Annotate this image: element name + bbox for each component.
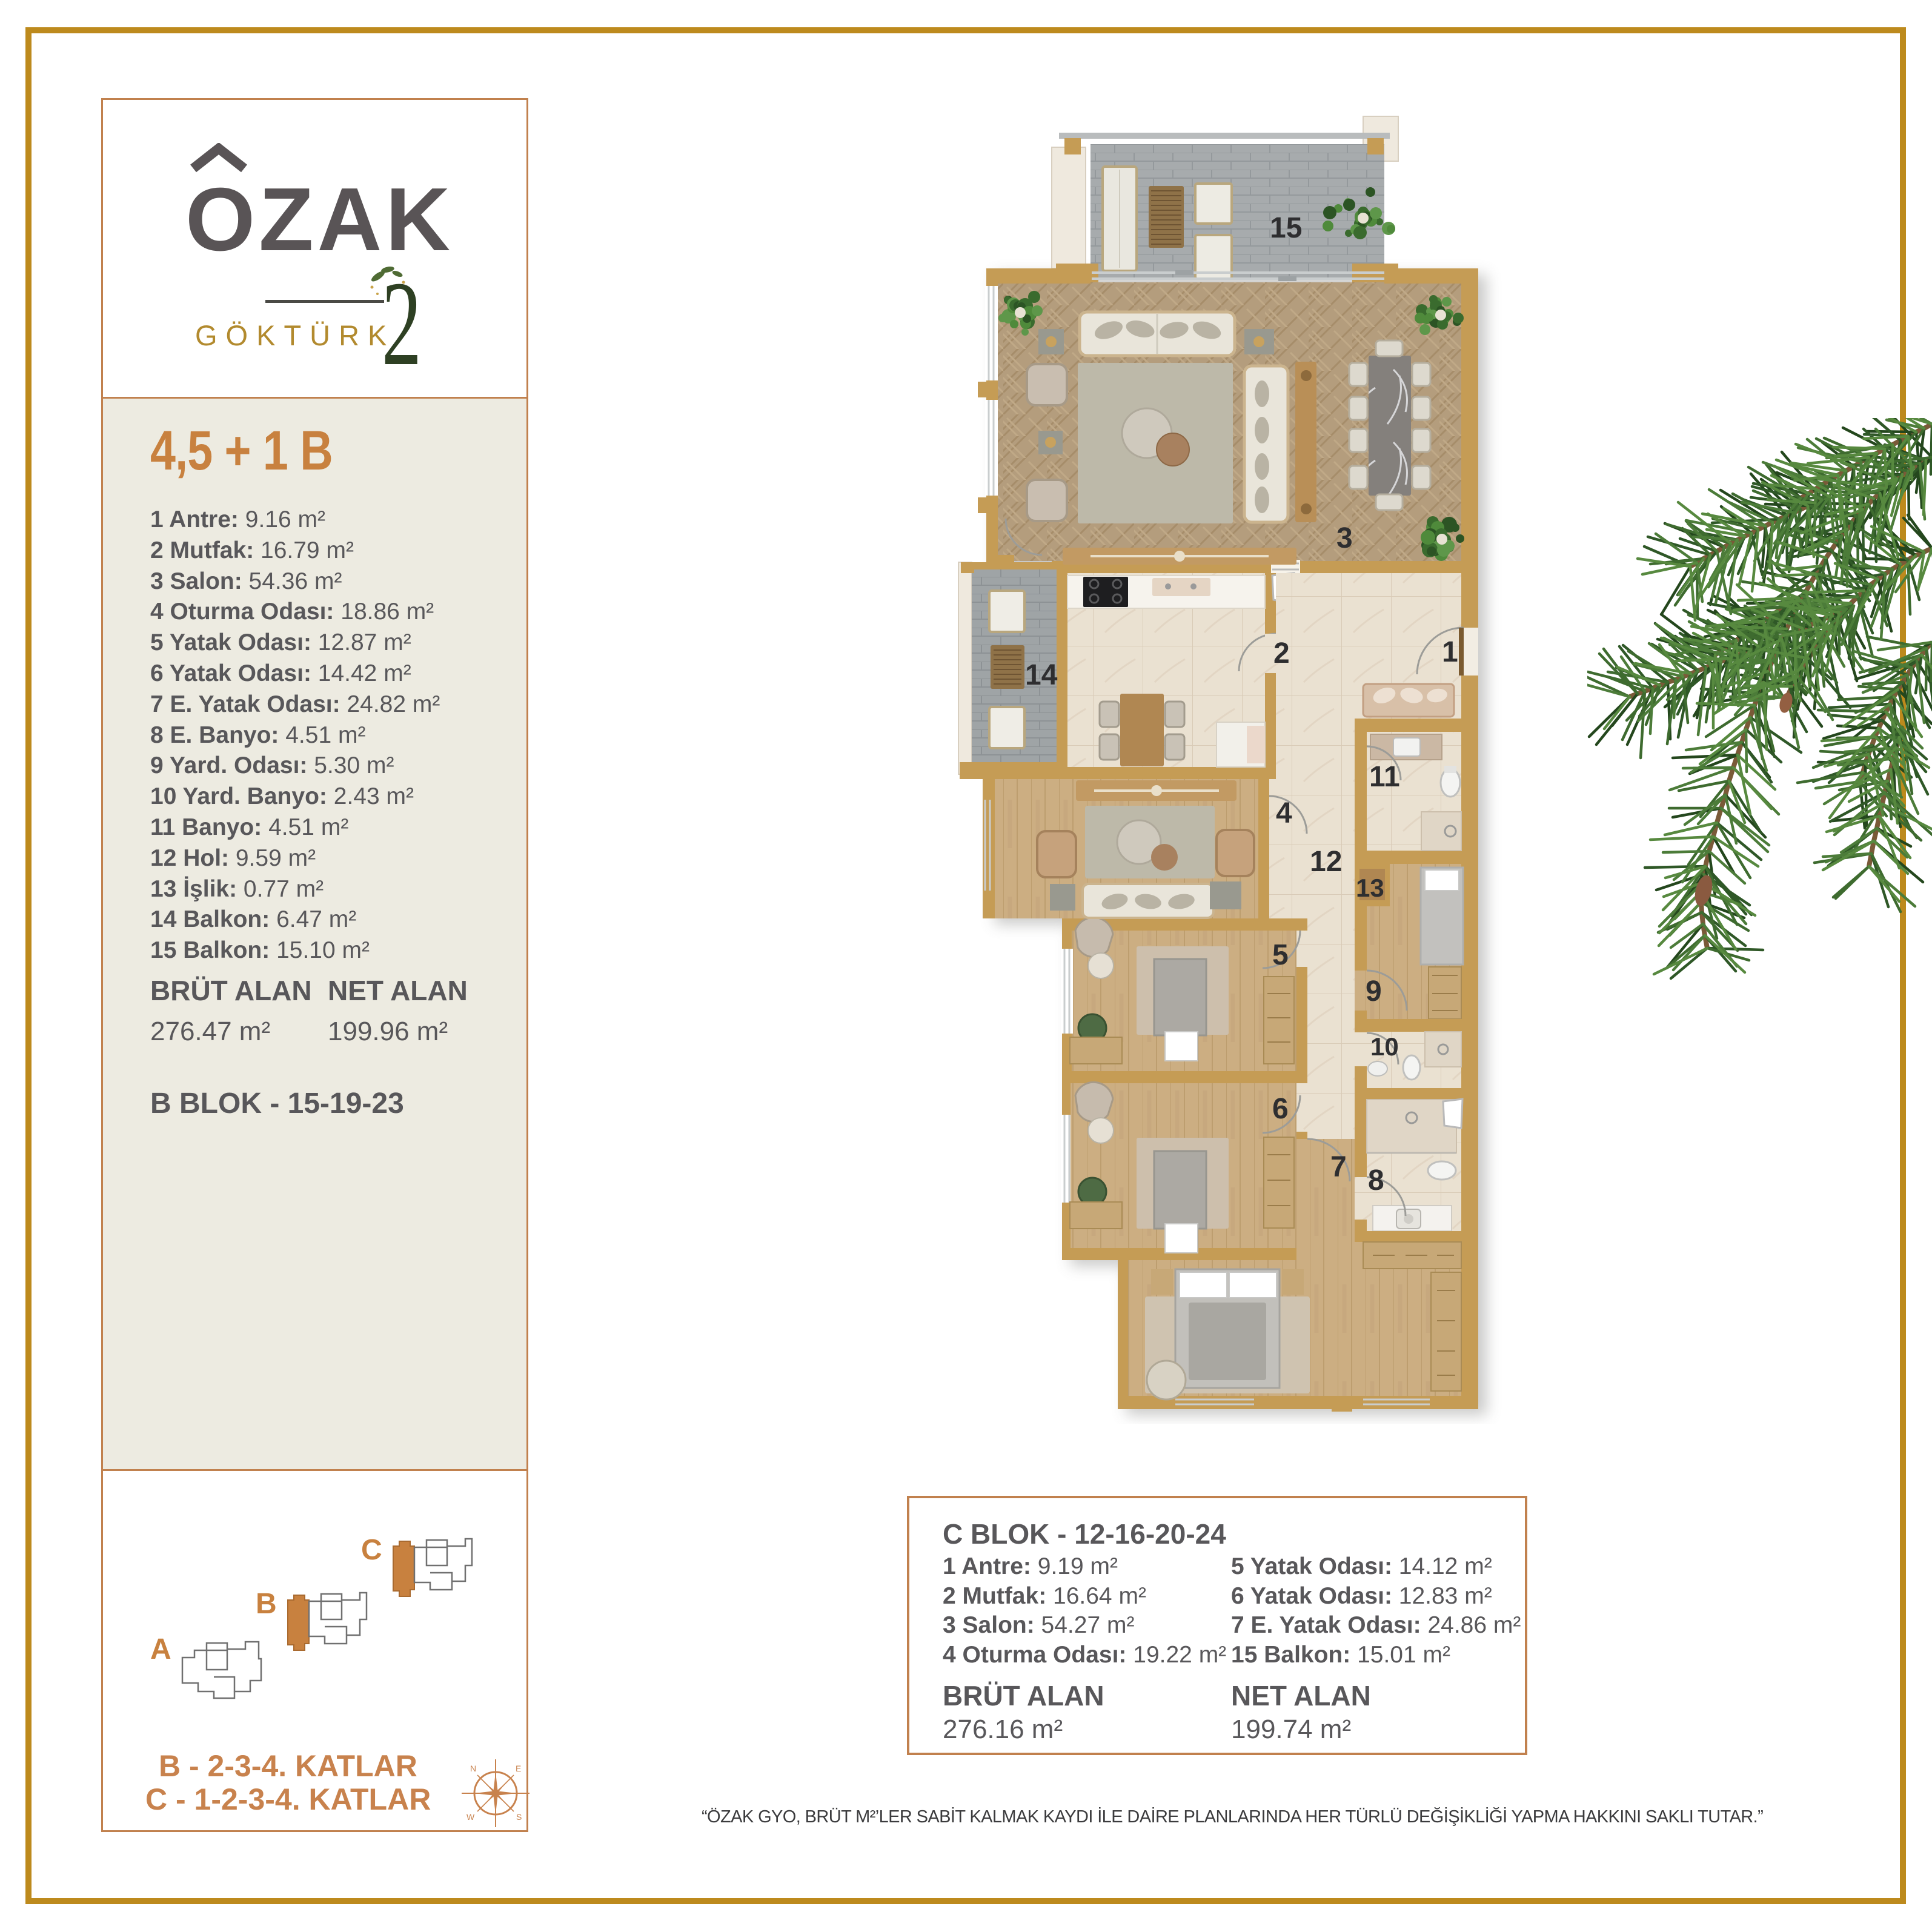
svg-text:N: N xyxy=(470,1764,476,1773)
svg-text:11: 11 xyxy=(1369,761,1400,793)
svg-text:5: 5 xyxy=(1272,939,1289,971)
svg-text:C: C xyxy=(361,1534,382,1566)
svg-text:13: 13 xyxy=(1356,874,1384,902)
svg-text:W: W xyxy=(466,1812,475,1822)
svg-text:10: 10 xyxy=(1370,1032,1399,1061)
svg-text:9: 9 xyxy=(1366,975,1382,1007)
svg-text:A: A xyxy=(150,1633,171,1665)
svg-text:15: 15 xyxy=(1270,212,1302,244)
svg-text:S: S xyxy=(516,1812,522,1822)
svg-text:12: 12 xyxy=(1310,846,1342,878)
svg-text:2: 2 xyxy=(1273,637,1290,669)
svg-text:1: 1 xyxy=(1442,636,1458,668)
svg-text:B: B xyxy=(256,1588,277,1620)
svg-text:8: 8 xyxy=(1368,1164,1384,1197)
svg-text:7: 7 xyxy=(1330,1151,1347,1183)
svg-text:E: E xyxy=(516,1764,521,1773)
svg-text:14: 14 xyxy=(1025,659,1058,691)
svg-text:4: 4 xyxy=(1276,797,1292,829)
svg-text:6: 6 xyxy=(1272,1093,1289,1125)
svg-text:3: 3 xyxy=(1336,522,1353,554)
